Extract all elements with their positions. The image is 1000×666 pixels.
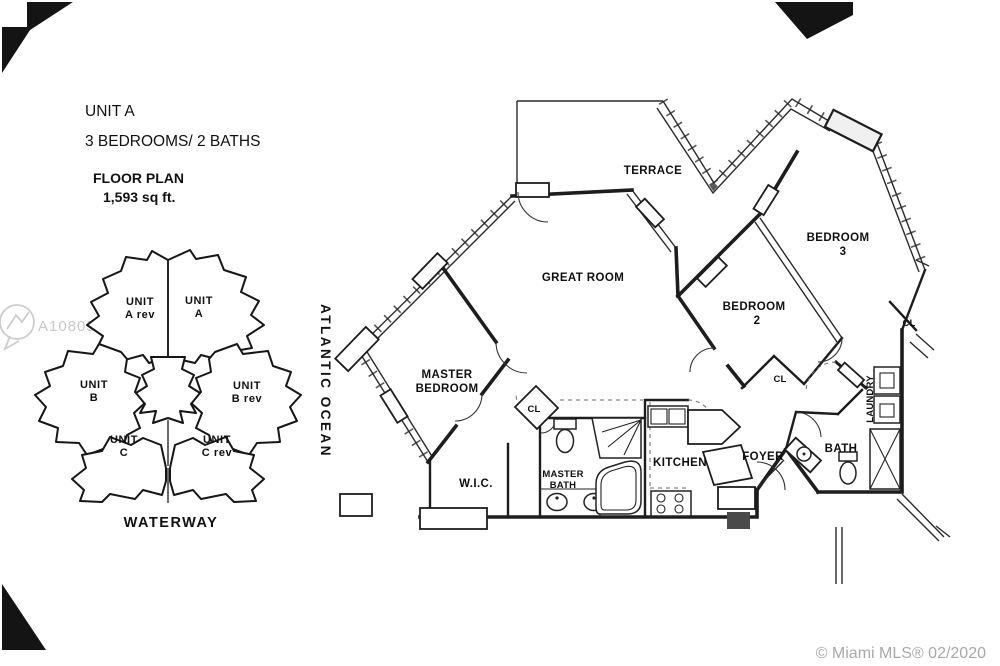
scan-mark-bottom-left: [2, 584, 46, 650]
keyplan-label-unit-c-rev-variant: C rev: [202, 447, 233, 459]
closet-label-bedroom3: CL: [902, 318, 915, 329]
room-label-bedroom3-2: 3: [840, 246, 847, 258]
keyplan-label-unit-c-variant: C: [120, 447, 129, 459]
room-label-terrace: TERRACE: [624, 165, 682, 177]
plan-label: FLOOR PLAN: [93, 170, 184, 186]
mls-credit: © Miami MLS® 02/2020: [816, 645, 986, 662]
keyplan-unit-a-shape: [168, 250, 264, 363]
room-label-great-room: GREAT ROOM: [542, 272, 624, 284]
shower-icon: [592, 418, 641, 458]
sink-icon: [547, 494, 567, 511]
kitchen-counter: [688, 410, 740, 444]
closet-label-bedroom2: CL: [773, 374, 786, 385]
room-labels: TERRACE GREAT ROOM MASTER BEDROOM BEDROO…: [416, 165, 916, 491]
dryer-icon: [874, 396, 900, 423]
room-label-master-bath-2: BATH: [550, 480, 576, 491]
keyplan-label-unit-a-rev: UNIT: [126, 296, 154, 308]
unit-floor-plan: TERRACE GREAT ROOM MASTER BEDROOM BEDROO…: [335, 99, 950, 584]
door-arcs: [455, 192, 842, 490]
washer-icon: [874, 367, 900, 394]
unit-title: UNIT A: [85, 103, 135, 120]
keyplan-label-unit-a-rev-variant: A rev: [125, 309, 155, 321]
scan-mark-top-left-a: [27, 2, 73, 32]
closet-label-master: CL: [527, 404, 540, 415]
room-label-bath: BATH: [825, 443, 858, 455]
room-label-laundry: LAUNDRY: [865, 375, 876, 423]
toilet-icon: [554, 419, 576, 429]
floor-plan-drawing: UNIT A 3 BEDROOMS/ 2 BATHS FLOOR PLAN 1,…: [0, 0, 1000, 666]
keyplan-label-unit-a-variant: A: [195, 308, 204, 320]
keyplan-label-unit-c: UNIT: [110, 434, 138, 446]
waterway-label: WATERWAY: [124, 515, 219, 531]
keyplan-label-unit-c-rev: UNIT: [203, 434, 231, 446]
room-label-foyer: FOYER: [742, 451, 784, 463]
scan-mark-top-right: [775, 2, 853, 39]
room-label-master-bedroom-1: MASTER: [422, 369, 473, 381]
room-label-wic: W.I.C.: [459, 478, 493, 490]
room-label-bedroom2-1: BEDROOM: [723, 301, 786, 313]
room-label-bedroom3-1: BEDROOM: [807, 232, 870, 244]
keyplan-label-unit-b-variant: B: [90, 392, 99, 404]
stove-icon: [651, 491, 691, 516]
keyplan-label-unit-b: UNIT: [80, 379, 108, 391]
atlantic-ocean-label: ATLANTIC OCEAN: [318, 304, 333, 458]
keyplan-label-unit-b-rev: UNIT: [233, 380, 261, 392]
room-label-master-bath-1: MASTER: [542, 469, 583, 480]
keyplan-label-unit-b-rev-variant: B rev: [232, 393, 263, 405]
room-label-master-bedroom-2: BEDROOM: [416, 383, 479, 395]
keyplan-label-unit-a: UNIT: [185, 295, 213, 307]
camera-logo-icon: [0, 305, 34, 349]
title-block: UNIT A 3 BEDROOMS/ 2 BATHS FLOOR PLAN 1,…: [85, 103, 260, 205]
plan-area: 1,593 sq ft.: [103, 189, 175, 205]
floor-plan-page: UNIT A 3 BEDROOMS/ 2 BATHS FLOOR PLAN 1,…: [0, 0, 1000, 666]
unit-specs: 3 BEDROOMS/ 2 BATHS: [85, 133, 260, 150]
scan-mark-top-left-b: [2, 27, 32, 73]
room-label-kitchen: KITCHEN: [653, 457, 707, 469]
key-plan: UNIT A rev UNIT A UNIT B UNIT B rev UNIT…: [35, 250, 301, 531]
keyplan-core-shape: [136, 357, 200, 423]
terrace-outline: [517, 99, 929, 272]
room-label-bedroom2-2: 2: [754, 315, 761, 327]
entry-step: [727, 512, 750, 529]
